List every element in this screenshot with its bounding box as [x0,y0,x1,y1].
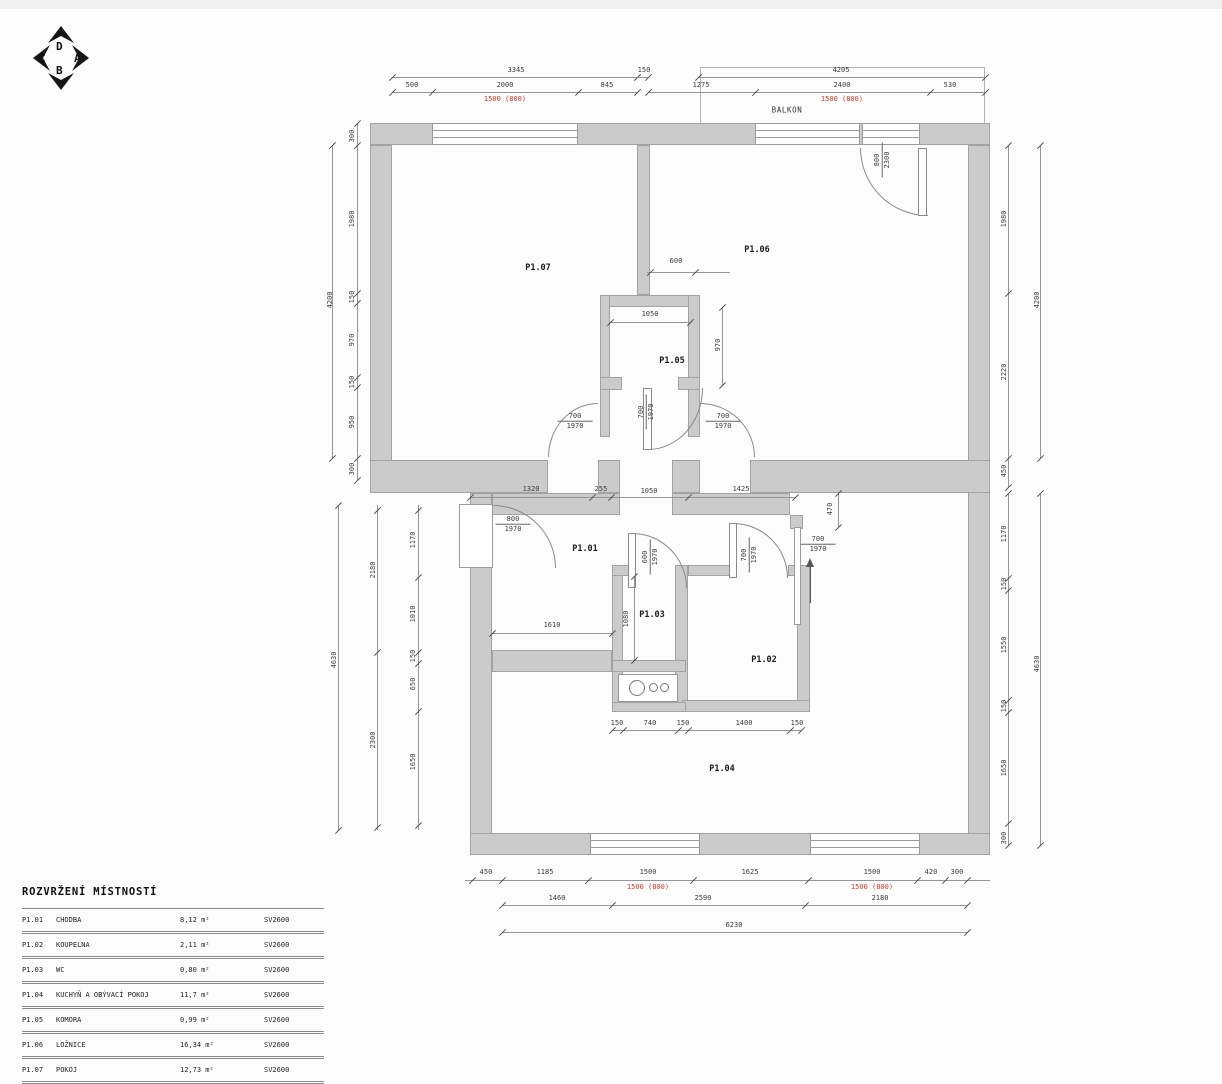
dimension-tick [329,455,336,462]
dimension-label: 450 [480,868,493,876]
dimension-label: 1185 [537,868,554,876]
door-height: 1970 [801,544,836,554]
dimension-label: 1050 [642,310,659,318]
dimension-label: 1320 [523,485,540,493]
room-name: POKOJ [56,1066,180,1074]
dimension-label: 1460 [549,894,566,902]
table-row: P1.04 KUCHYŇ A OBÝVACÍ POKOJ 11,7 m² SV2… [22,984,324,1009]
sink-icon [629,680,645,696]
dimension-label: 300 [348,130,356,143]
wall-segment [370,460,548,493]
door-width: 700 [803,535,834,544]
room-code: SV2600 [264,1066,324,1074]
dimension-label: 4630 [330,652,338,669]
dimension-label: 1275 [693,81,710,89]
door-size-label: 7001970 [637,395,656,430]
dimension-line [838,493,839,527]
compass-letter-bottom: B [56,64,63,77]
room-id: P1.04 [22,991,56,999]
entrance-door-recess [459,504,493,568]
dimension-line [465,880,990,881]
window [590,833,700,855]
room-name: CHODBA [56,916,180,924]
dimension-label: 4630 [1033,656,1041,673]
dimension-line [648,92,985,93]
window [810,833,920,855]
dimension-label: 2590 [695,894,712,902]
dimension-label: 150 [348,291,356,304]
room-schedule: ROZVRŽENÍ MÍSTNOSTÍ P1.01 CHODBA 8,12 m²… [22,886,324,1084]
dimension-label-highlight: 1500 (800) [484,95,526,103]
dimension-label: 1425 [733,485,750,493]
dimension-label: 300 [1000,832,1008,845]
dimension-label: 4200 [1033,292,1041,309]
door-leaf [918,148,927,216]
balcony-label: BALKON [772,106,803,115]
door-size-label: 7001970 [706,412,741,431]
room-name: KUCHYŇ A OBÝVACÍ POKOJ [56,991,180,999]
dimension-line [470,497,795,498]
dimension-label: 1650 [409,754,417,771]
dimension-label: 150 [1000,578,1008,591]
door-height: 1970 [706,421,741,431]
dimension-tick [798,727,805,734]
room-label: P1.03 [639,610,665,620]
door-size-label: 8002300 [873,143,892,178]
door-size-label: 7001970 [740,538,759,573]
wall-segment [688,565,733,576]
dimension-label-highlight: 1500 (800) [851,883,893,891]
door-size-label: 8001970 [496,515,531,534]
dimension-label: 1500 [640,868,657,876]
door-size-label: 7001970 [801,535,836,554]
table-row: P1.01 CHODBA 8,12 m² SV2600 [22,909,324,934]
hob-icon [649,683,658,692]
door-size-label: 6001970 [641,540,660,575]
dimension-line [634,576,635,660]
hob-icon [660,683,669,692]
door-size-label: 7001970 [558,412,593,431]
dimension-label: 950 [348,416,356,429]
dimension-label-highlight: 1500 (800) [627,883,669,891]
dimension-label: 2300 [369,732,377,749]
dimension-label: 300 [348,463,356,476]
compass-letter-top: D [56,40,63,53]
dimension-label: 1550 [1000,637,1008,654]
dimension-label: 2180 [369,562,377,579]
window [432,123,578,145]
dimension-label: 600 [670,257,683,265]
dimension-line [722,307,723,385]
room-code: SV2600 [264,916,324,924]
dimension-line [418,505,419,830]
room-schedule-table: P1.01 CHODBA 8,12 m² SV2600 P1.02 KOUPEL… [22,908,324,1084]
dimension-line [392,77,637,78]
wall-segment [672,460,700,493]
dimension-line [610,322,690,323]
dimension-line [502,905,967,906]
dimension-label: 500 [406,81,419,89]
dimension-tick [964,902,971,909]
dimension-label: 150 [409,650,417,663]
dimension-line [502,932,967,933]
page-top-strip [0,0,1222,9]
door-width: 700 [708,412,739,421]
dimension-label: 1980 [1000,211,1008,228]
door-height: 1970 [496,524,531,534]
dimension-line [392,92,637,93]
room-label: P1.05 [659,356,685,366]
wall-segment [968,145,990,855]
dimension-line [647,272,730,273]
room-id: P1.05 [22,1016,56,1024]
room-label: P1.07 [525,263,551,273]
dimension-label-highlight: 1500 (800) [821,95,863,103]
room-code: SV2600 [264,991,324,999]
dimension-label: 6230 [726,921,743,929]
door-height: 1970 [646,395,656,430]
dimension-label: 3345 [508,66,525,74]
wall-segment [612,660,686,672]
dimension-label: 530 [944,81,957,89]
room-code: SV2600 [264,941,324,949]
wall-segment [750,460,990,493]
door-height: 1970 [558,421,593,431]
dimension-tick [1037,842,1044,849]
dimension-label: 1650 [1000,760,1008,777]
dimension-tick [1037,455,1044,462]
room-name: KOMORA [56,1016,180,1024]
wall-segment [492,650,612,672]
dimension-label: 150 [791,719,804,727]
dimension-tick [792,494,799,501]
dimension-tick [964,929,971,936]
door-width: 700 [637,397,646,428]
dimension-label: 150 [677,719,690,727]
wall-segment [682,700,810,712]
room-code: SV2600 [264,966,324,974]
table-row: P1.02 KOUPELNA 2,11 m² SV2600 [22,934,324,959]
wall-segment [370,145,392,493]
dimension-tick [719,382,726,389]
dimension-label: 420 [925,868,938,876]
dimension-line [612,730,801,731]
room-area: 2,11 m² [180,941,264,949]
dimension-tick [335,827,342,834]
dimension-line [1008,493,1009,845]
dimension-line [492,633,612,634]
door-height: 1970 [749,538,759,573]
dimension-label: 4200 [326,292,334,309]
room-label: P1.02 [751,655,777,665]
wall-segment [612,702,686,712]
dimension-label: 1170 [409,532,417,549]
door-width: 700 [740,540,749,571]
room-code: SV2600 [264,1016,324,1024]
kitchen-counter [618,674,678,702]
room-area: 8,12 m² [180,916,264,924]
room-area: 12,73 m² [180,1066,264,1074]
direction-arrow-head [806,558,814,567]
dimension-label: 4205 [833,66,850,74]
dimension-label: 150 [638,66,651,74]
dimension-label: 1400 [736,719,753,727]
dimension-label: 150 [348,376,356,389]
table-row: P1.06 LOŽNICE 16,34 m² SV2600 [22,1034,324,1059]
dimension-label: 1170 [1000,526,1008,543]
dimension-label: 450 [1000,465,1008,478]
dimension-label: 1080 [622,611,630,628]
dimension-label: 1980 [348,211,356,228]
door-leaf [729,523,737,578]
room-id: P1.02 [22,941,56,949]
dimension-label: 970 [714,339,722,352]
table-row: P1.07 POKOJ 12,73 m² SV2600 [22,1059,324,1084]
dimension-label: 1625 [742,868,759,876]
door-height: 1970 [650,540,660,575]
direction-arrow [810,567,811,603]
door-height: 2300 [882,143,892,178]
dimension-label: 1050 [641,487,658,495]
wall-segment [600,295,610,437]
dimension-tick [634,89,641,96]
dimension-label: 845 [601,81,614,89]
dimension-label: 150 [611,719,624,727]
window [755,123,860,145]
room-name: KOUPELNA [56,941,180,949]
dimension-label: 2220 [1000,364,1008,381]
door-width: 800 [873,145,882,176]
room-schedule-title: ROZVRŽENÍ MÍSTNOSTÍ [22,886,324,898]
room-id: P1.06 [22,1041,56,1049]
dimension-label: 2400 [834,81,851,89]
dimension-line [377,505,378,830]
dimension-label: 970 [348,334,356,347]
room-id: P1.03 [22,966,56,974]
room-label: P1.01 [572,544,598,554]
room-name: LOŽNICE [56,1041,180,1049]
dimension-label: 2180 [872,894,889,902]
table-row: P1.03 WC 0,80 m² SV2600 [22,959,324,984]
dimension-tick [645,74,652,81]
room-code: SV2600 [264,1041,324,1049]
wall-segment [600,295,700,307]
room-name: WC [56,966,180,974]
compass-letter-right: A [74,52,81,65]
dimension-label: 2000 [497,81,514,89]
dimension-label: 255 [595,485,608,493]
dimension-label: 1500 [864,868,881,876]
dimension-line [1008,145,1009,487]
door-width: 600 [641,542,650,573]
compass-rose: D C A B [25,14,97,102]
door-width: 800 [498,515,529,524]
door-width: 700 [560,412,591,421]
table-row: P1.05 KOMORA 0,99 m² SV2600 [22,1009,324,1034]
dimension-label: 1010 [409,606,417,623]
dimension-tick [354,477,361,484]
dimension-label: 300 [951,868,964,876]
room-label: P1.06 [744,245,770,255]
dimension-label: 150 [1000,700,1008,713]
room-label: P1.04 [709,764,735,774]
room-area: 0,80 m² [180,966,264,974]
compass-letter-left: C [39,52,46,65]
dimension-line [338,505,339,830]
dimension-label: 740 [644,719,657,727]
door-arc [648,388,703,450]
wall-segment [600,377,622,390]
room-id: P1.01 [22,916,56,924]
room-id: P1.07 [22,1066,56,1074]
dimension-tick [835,524,842,531]
dimension-label: 470 [826,503,834,516]
room-area: 16,34 m² [180,1041,264,1049]
dimension-label: 650 [409,678,417,691]
compass-arrows [25,14,97,102]
room-area: 0,99 m² [180,1016,264,1024]
dimension-line [698,77,985,78]
dimension-label: 1610 [544,621,561,629]
room-area: 11,7 m² [180,991,264,999]
